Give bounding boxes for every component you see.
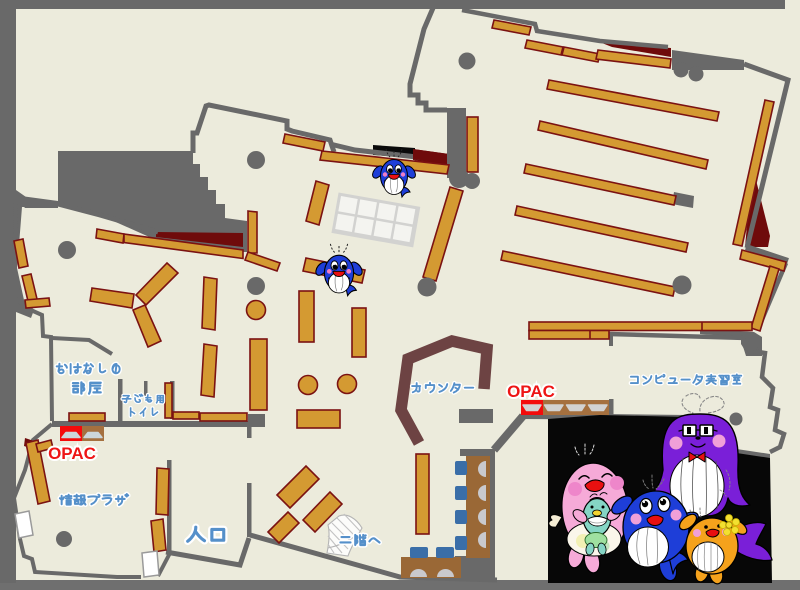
svg-text:OPAC: OPAC (48, 444, 96, 463)
svg-text:OPAC: OPAC (507, 382, 555, 401)
